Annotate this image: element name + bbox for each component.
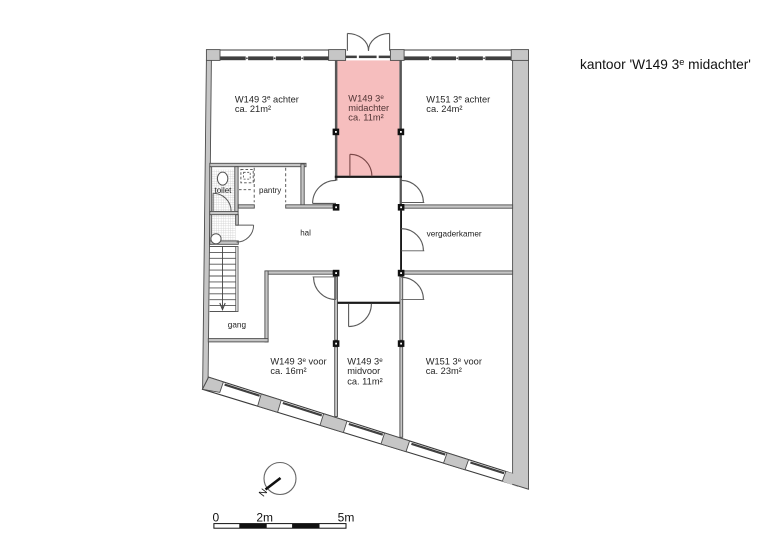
svg-text:W149 3e: W149 3e [348, 94, 384, 104]
svg-text:5m: 5m [338, 510, 355, 524]
svg-text:W149 3e achter: W149 3e achter [235, 94, 299, 104]
svg-text:ca. 23m²: ca. 23m² [426, 366, 462, 376]
svg-text:vergaderkamer: vergaderkamer [427, 230, 482, 239]
svg-text:hal: hal [300, 229, 311, 238]
svg-text:midachter: midachter [348, 103, 389, 113]
svg-text:ca. 11m²: ca. 11m² [347, 376, 382, 386]
svg-text:ca. 24m²: ca. 24m² [426, 104, 462, 114]
svg-text:W151 3e achter: W151 3e achter [426, 94, 490, 104]
svg-text:0: 0 [213, 510, 220, 524]
svg-text:pantry: pantry [259, 186, 281, 195]
svg-text:W149 3e: W149 3e [347, 357, 383, 367]
svg-text:midvoor: midvoor [347, 366, 380, 376]
svg-text:ca. 21m²: ca. 21m² [235, 104, 271, 114]
svg-text:toilet: toilet [215, 186, 233, 195]
svg-text:ca. 11m²: ca. 11m² [348, 113, 383, 123]
svg-text:gang: gang [228, 321, 247, 330]
svg-text:ca. 16m²: ca. 16m² [270, 366, 306, 376]
svg-text:kantoor 'W149 3e midachter': kantoor 'W149 3e midachter' [580, 57, 751, 72]
svg-text:W151 3e voor: W151 3e voor [426, 357, 482, 367]
svg-text:W149 3e voor: W149 3e voor [270, 357, 326, 367]
svg-text:2m: 2m [256, 510, 273, 524]
